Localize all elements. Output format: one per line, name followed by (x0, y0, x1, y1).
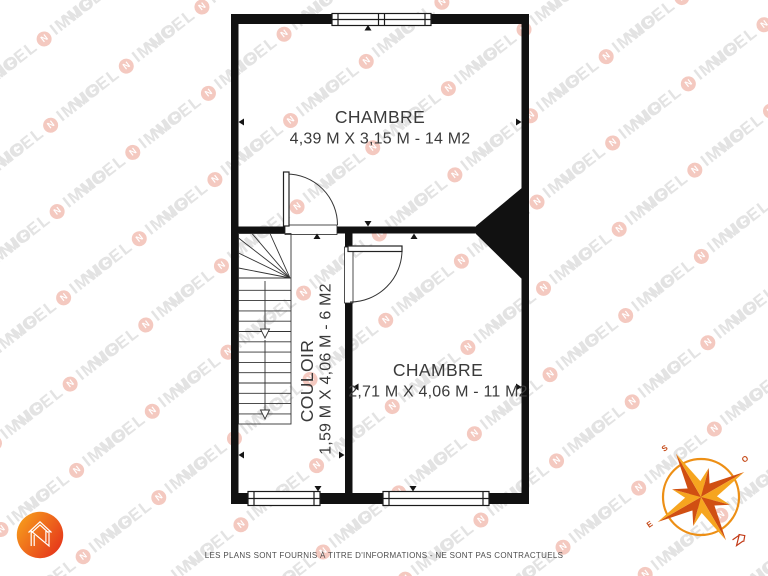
room-dims-chambre-bottom: 2,71 M X 4,06 M - 11 M2 (348, 384, 528, 401)
compass-label-east: E (645, 519, 655, 530)
room-dims-chambre-top: 4,39 M X 3,15 M - 14 M2 (290, 131, 471, 148)
door-top-chamber (284, 172, 338, 235)
disclaimer-text: LES PLANS SONT FOURNIS À TITRE D'INFORMA… (0, 551, 768, 560)
room-dims-couloir: 1,59 M X 4,06 M - 6 M2 (318, 283, 335, 455)
outer-walls (231, 14, 529, 504)
window-bottom-left (248, 492, 320, 506)
compass-north-mark-icon (732, 532, 747, 547)
compass-rose: S O E (640, 436, 765, 566)
staircase (239, 234, 292, 425)
chimney-mass (476, 182, 529, 286)
window-top (332, 14, 431, 26)
room-label-couloir: COULOIR (297, 340, 317, 423)
room-label-chambre-bottom: CHAMBRE (393, 360, 483, 380)
middle-wall (238, 182, 529, 286)
door-bottom-chamber (345, 246, 403, 303)
floorplan-page: NIGELNIMMONIGELNIMMONIGELNIMMONIGELNIMMO… (0, 0, 768, 576)
window-bottom-right (383, 492, 489, 506)
compass-label-west: O (740, 454, 750, 465)
compass-label-south: S (660, 443, 670, 454)
room-label-chambre-top: CHAMBRE (335, 107, 425, 127)
